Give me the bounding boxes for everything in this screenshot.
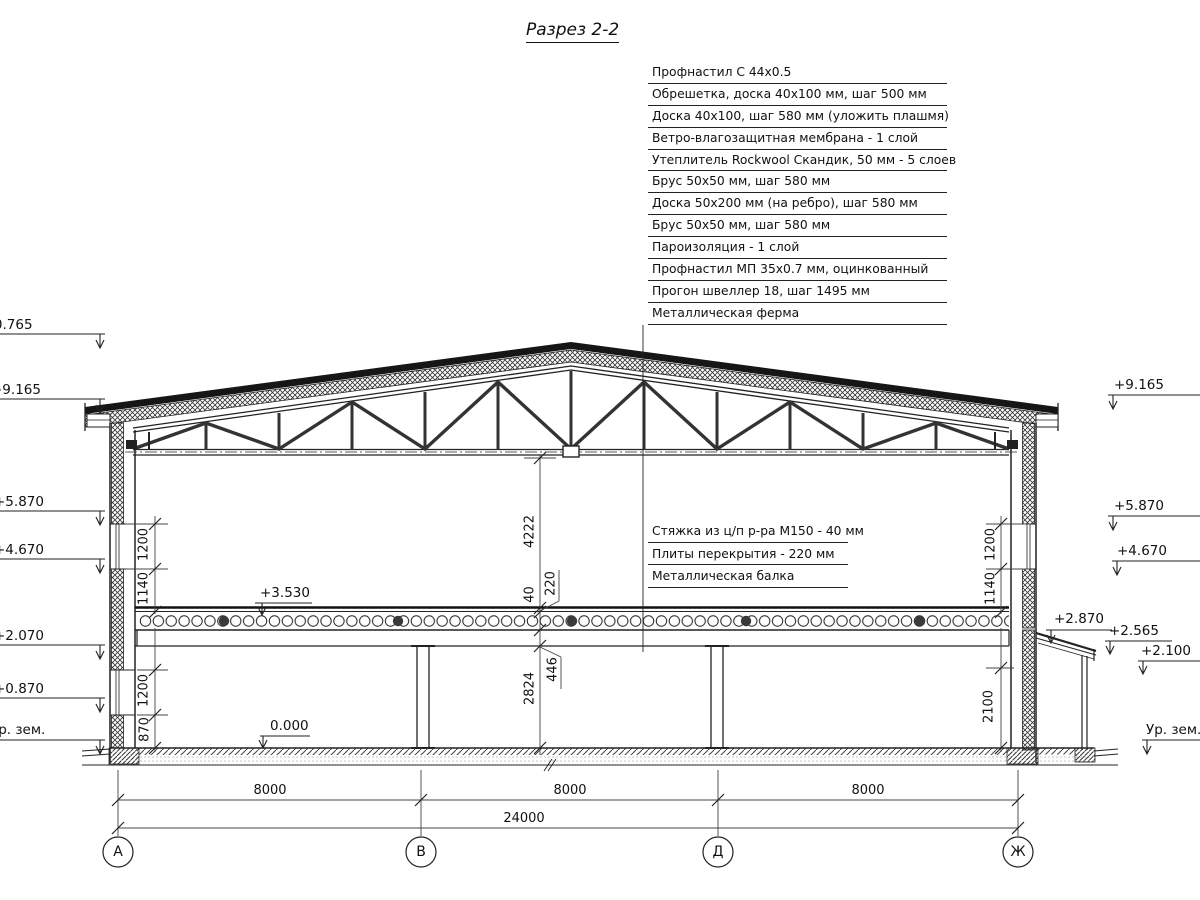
axis-bubble-a: А bbox=[103, 844, 133, 860]
dim-40: 40 bbox=[523, 573, 538, 617]
elevation-left-0870: +0.870 bbox=[0, 681, 44, 697]
dim-left-1200-lower: 1200 bbox=[137, 669, 152, 713]
columns bbox=[411, 646, 729, 748]
elevation-leanto-ridge: +2.870 bbox=[1054, 611, 1104, 627]
dim-total-24000: 24000 bbox=[494, 811, 554, 826]
elevation-left-2070: +2.070 bbox=[0, 628, 44, 644]
dim-446: 446 bbox=[546, 648, 561, 692]
dim-left-870: 870 bbox=[138, 708, 153, 752]
axis-bubble-d: Д bbox=[703, 844, 733, 860]
roof-layer-callouts: Профнастил С 44х0.5Обрешетка, доска 40х1… bbox=[648, 62, 947, 325]
dim-right-1140: 1140 bbox=[984, 567, 999, 611]
dim-2824: 2824 bbox=[523, 667, 538, 711]
callout-row: Доска 40х100, шаг 580 мм (уложить плашмя… bbox=[648, 106, 947, 128]
elevation-eave-left: +9.165 bbox=[0, 382, 41, 398]
elevation-right-5870: +5.870 bbox=[1114, 498, 1164, 514]
elevation-left-5870: +5.870 bbox=[0, 494, 44, 510]
elevation-ridge-left: +10.765 bbox=[0, 317, 33, 333]
ground bbox=[82, 748, 1118, 771]
dim-span-2: 8000 bbox=[540, 783, 600, 798]
callout-row: Обрешетка, доска 40х100 мм, шаг 500 мм bbox=[648, 84, 947, 106]
elevation-floor-slab: +3.530 bbox=[260, 585, 310, 601]
floor-layer-callouts: Стяжка из ц/п р-ра М150 - 40 ммПлиты пер… bbox=[648, 520, 848, 588]
dim-left-1140: 1140 bbox=[137, 567, 152, 611]
dim-right-2100: 2100 bbox=[982, 685, 997, 729]
callout-row: Прогон швеллер 18, шаг 1495 мм bbox=[648, 281, 947, 303]
axis-bubble-zh: Ж bbox=[1003, 844, 1033, 860]
elevation-right-4670: +4.670 bbox=[1117, 543, 1167, 559]
steel-truss bbox=[125, 366, 1018, 457]
callout-row: Металлическая балка bbox=[648, 565, 848, 588]
ground-level-right: Ур. зем. bbox=[1146, 722, 1200, 738]
dim-220: 220 bbox=[544, 562, 559, 606]
callout-row: Металлическая ферма bbox=[648, 303, 947, 325]
callout-row: Ветро-влагозащитная мембрана - 1 слой bbox=[648, 128, 947, 150]
callout-row: Утеплитель Rockwool Скандик, 50 мм - 5 с… bbox=[648, 150, 947, 172]
callout-row: Профнастил МП 35х0.7 мм, оцинкованный bbox=[648, 259, 947, 281]
elevation-left-4670: +4.670 bbox=[0, 542, 44, 558]
callout-row: Брус 50х50 мм, шаг 580 мм bbox=[648, 215, 947, 237]
elevation-zero-level: 0.000 bbox=[270, 718, 309, 734]
section-drawing-sheet: Разрез 2-2 Профнастил С 44х0.5Обрешетка,… bbox=[0, 0, 1200, 900]
callout-row: Профнастил С 44х0.5 bbox=[648, 62, 947, 84]
dim-span-3: 8000 bbox=[838, 783, 898, 798]
dim-right-1200: 1200 bbox=[984, 523, 999, 567]
callout-row: Пароизоляция - 1 слой bbox=[648, 237, 947, 259]
elevation-leanto-eave: +2.565 bbox=[1109, 623, 1159, 639]
elevation-leanto-wall: +2.100 bbox=[1141, 643, 1191, 659]
section-linework bbox=[0, 0, 1200, 900]
ground-level-left: Ур. зем. bbox=[0, 722, 45, 738]
callout-row: Плиты перекрытия - 220 мм bbox=[648, 543, 848, 566]
walls bbox=[110, 423, 1036, 763]
floor-slab bbox=[135, 608, 1009, 647]
callout-row: Стяжка из ц/п р-ра М150 - 40 мм bbox=[648, 520, 848, 543]
callout-row: Доска 50х200 мм (на ребро), шаг 580 мм bbox=[648, 193, 947, 215]
drawing-title: Разрез 2-2 bbox=[526, 20, 619, 43]
lean-to-annex bbox=[1036, 633, 1096, 750]
dim-4222: 4222 bbox=[523, 510, 538, 554]
elevation-eave-right: +9.165 bbox=[1114, 377, 1164, 393]
callout-row: Брус 50х50 мм, шаг 580 мм bbox=[648, 171, 947, 193]
dim-left-1200-upper: 1200 bbox=[137, 523, 152, 567]
axis-bubble-v: В bbox=[406, 844, 436, 860]
dim-span-1: 8000 bbox=[240, 783, 300, 798]
